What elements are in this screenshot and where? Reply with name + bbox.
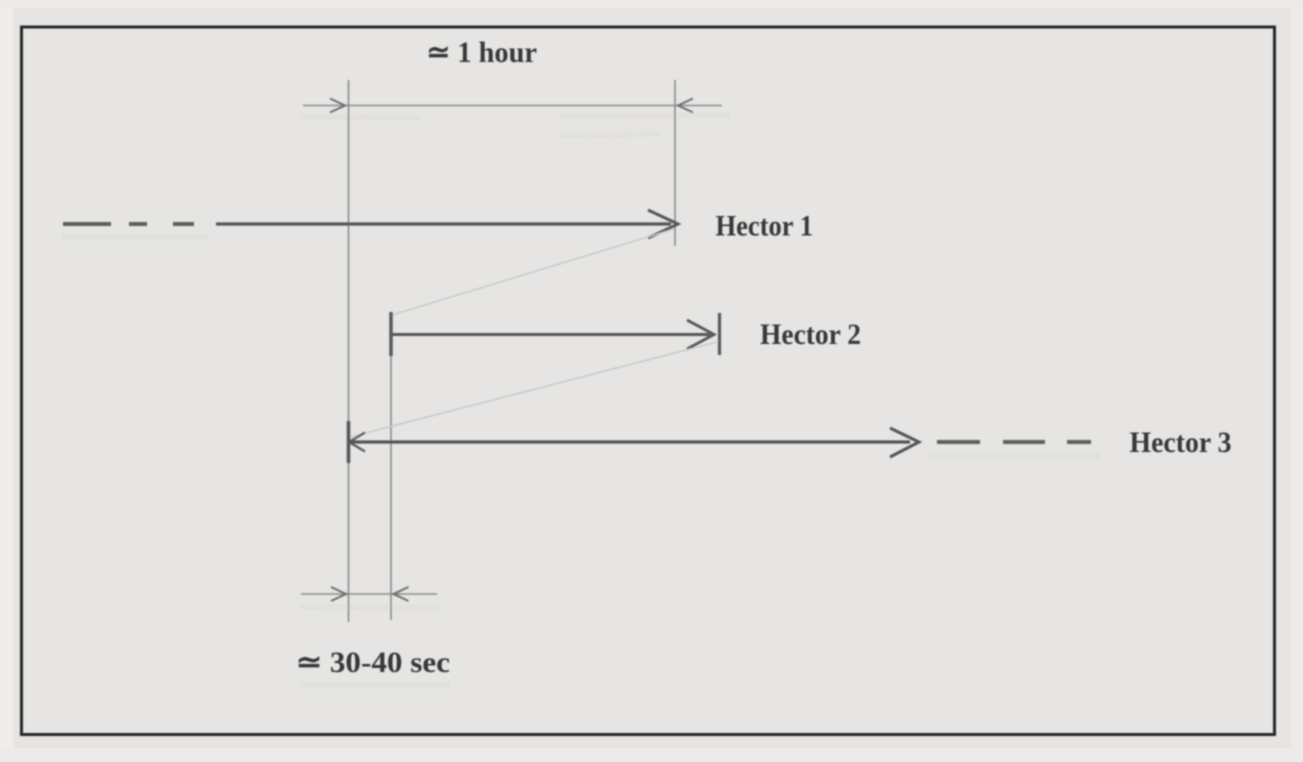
svg-text:Hector 3: Hector 3 [1130,426,1232,459]
svg-text:Hector 2: Hector 2 [760,318,861,351]
svg-text:≃ 1 hour: ≃ 1 hour [427,36,538,69]
svg-text:Hector 1: Hector 1 [716,210,814,243]
svg-text:≃ 30-40 sec: ≃ 30-40 sec [296,646,450,679]
